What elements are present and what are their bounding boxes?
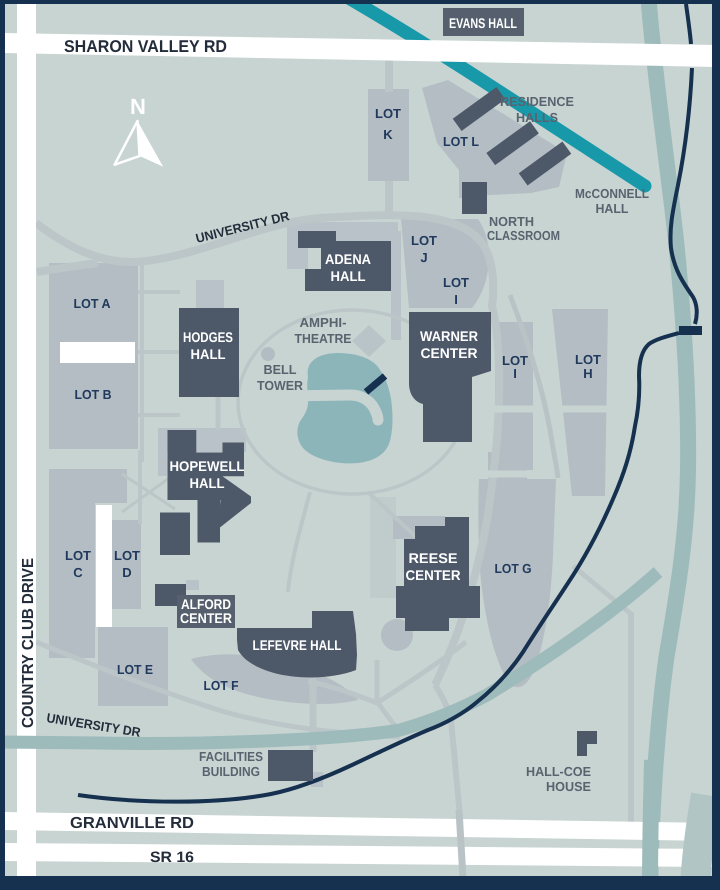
svg-text:BELL: BELL — [264, 362, 297, 377]
svg-text:FACILITIES: FACILITIES — [199, 749, 263, 764]
svg-text:LOT: LOT — [65, 548, 91, 563]
svg-text:LOT A: LOT A — [74, 296, 112, 311]
svg-text:EVANS HALL: EVANS HALL — [449, 15, 517, 31]
svg-text:HALL-COE: HALL-COE — [526, 764, 591, 779]
svg-text:HOUSE: HOUSE — [546, 779, 591, 794]
svg-text:HALL: HALL — [191, 346, 226, 362]
svg-text:REESE: REESE — [409, 550, 458, 566]
svg-text:H: H — [583, 366, 592, 381]
svg-text:CENTER: CENTER — [406, 567, 461, 583]
svg-text:HALL: HALL — [596, 201, 629, 216]
svg-text:RESIDENCE: RESIDENCE — [500, 94, 574, 109]
svg-text:COUNTRY CLUB DRIVE: COUNTRY CLUB DRIVE — [20, 558, 37, 728]
svg-text:NORTH: NORTH — [489, 214, 534, 229]
svg-text:CENTER: CENTER — [180, 610, 232, 626]
svg-text:LOT: LOT — [375, 106, 401, 121]
svg-text:LOT L: LOT L — [443, 134, 479, 149]
svg-text:HALLS: HALLS — [516, 110, 558, 125]
svg-text:CLASSROOM: CLASSROOM — [487, 228, 560, 243]
svg-text:K: K — [383, 127, 393, 142]
svg-text:LOT E: LOT E — [117, 662, 153, 677]
svg-text:N: N — [130, 94, 146, 119]
svg-text:CENTER: CENTER — [421, 345, 478, 361]
svg-text:LOT: LOT — [575, 352, 601, 367]
svg-text:LOT B: LOT B — [75, 387, 112, 402]
svg-text:HALL: HALL — [331, 268, 366, 284]
svg-text:THEATRE: THEATRE — [295, 331, 352, 346]
svg-text:TOWER: TOWER — [257, 378, 304, 393]
svg-text:LOT: LOT — [114, 548, 140, 563]
svg-text:J: J — [420, 250, 427, 265]
svg-text:I: I — [513, 366, 517, 381]
svg-text:AMPHI-: AMPHI- — [300, 315, 347, 330]
svg-text:McCONNELL: McCONNELL — [575, 186, 649, 201]
svg-text:ADENA: ADENA — [325, 251, 371, 267]
svg-text:I: I — [454, 292, 458, 307]
svg-text:LOT: LOT — [443, 275, 469, 290]
svg-text:GRANVILLE RD: GRANVILLE RD — [70, 815, 194, 832]
svg-text:WARNER: WARNER — [420, 328, 478, 344]
svg-text:LOT G: LOT G — [495, 561, 532, 576]
svg-text:LEFEVRE HALL: LEFEVRE HALL — [253, 637, 342, 653]
svg-text:LOT F: LOT F — [204, 678, 239, 693]
svg-text:SHARON VALLEY RD: SHARON VALLEY RD — [64, 37, 227, 56]
svg-text:SR 16: SR 16 — [150, 849, 194, 866]
svg-text:C: C — [73, 565, 83, 580]
svg-text:LOT: LOT — [411, 233, 437, 248]
svg-text:BUILDING: BUILDING — [202, 764, 260, 779]
svg-text:HALL: HALL — [190, 475, 225, 491]
svg-text:HODGES: HODGES — [183, 329, 233, 345]
svg-text:D: D — [122, 565, 131, 580]
svg-text:HOPEWELL: HOPEWELL — [170, 458, 245, 474]
